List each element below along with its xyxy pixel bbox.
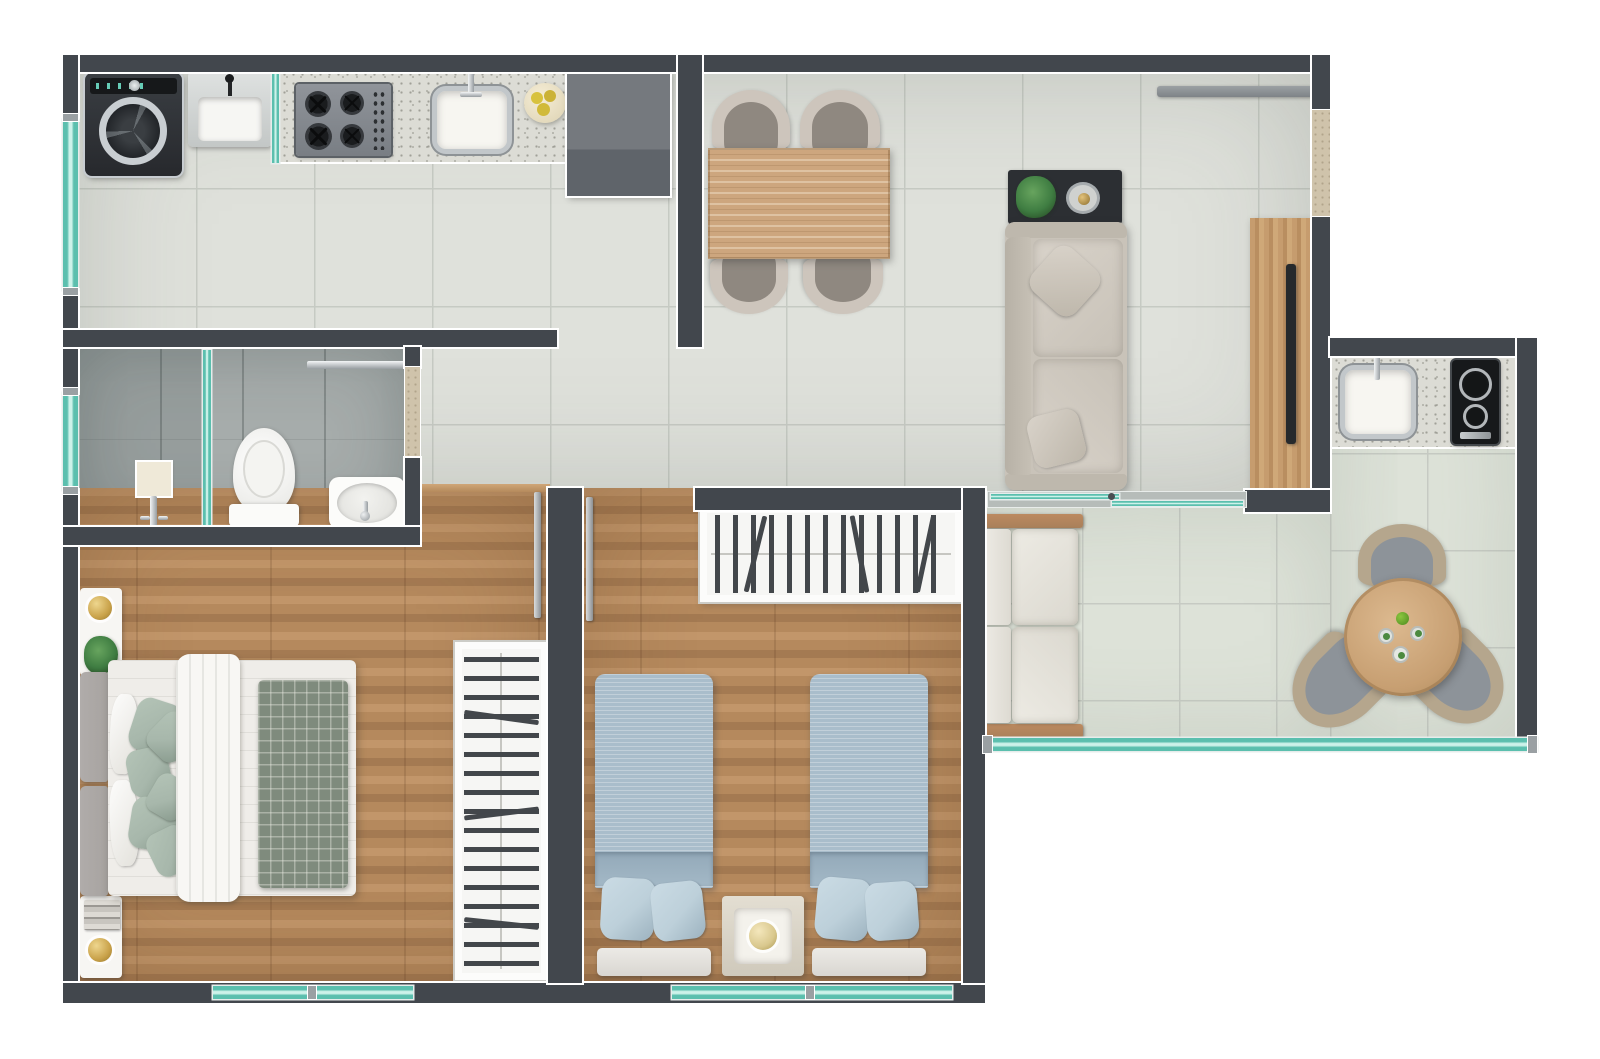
wall-bathroom-right: [405, 347, 420, 367]
drink-glass: [1392, 646, 1409, 663]
sofa-backrest: [1005, 237, 1031, 475]
wall-left: [63, 55, 78, 120]
mint-sprig: [1398, 652, 1405, 659]
floor-plan: [0, 0, 1600, 1059]
toilet: [233, 428, 295, 514]
curtain-rail: [1157, 86, 1313, 97]
washbasin: [329, 477, 405, 529]
outdoor-sofa: [977, 514, 1083, 738]
outdoor-sofa-seat-cushion: [1012, 529, 1078, 625]
outdoor-sofa-seat-cushion: [1012, 627, 1078, 723]
sofa-armrest: [1005, 474, 1127, 490]
toilet-tank: [229, 504, 299, 526]
toilet-seat: [243, 440, 285, 498]
outdoor-sofa-frame: [977, 514, 1083, 528]
bathroom-window: [63, 393, 78, 490]
wall-bathroom-bottom: [63, 527, 420, 545]
coffee-pot: [1078, 193, 1090, 205]
drink-glass: [1410, 626, 1425, 641]
dining-table: [708, 148, 890, 259]
blue-pillow: [813, 876, 872, 942]
sliding-glass-door-panel: [991, 494, 1119, 499]
bed1-headboard: [80, 672, 108, 782]
towel-rail: [307, 361, 407, 369]
wall-bedroom-divider: [548, 488, 582, 983]
window-mullion: [806, 986, 814, 999]
fruit: [544, 90, 556, 102]
wall-kitchen-divider: [678, 55, 702, 347]
tv: [1286, 264, 1296, 444]
wall-right-window-sill: [1312, 110, 1330, 216]
wall-living-bottom-right: [1245, 490, 1330, 512]
basin-faucet-base: [360, 511, 370, 521]
window-frame-cap: [63, 487, 78, 494]
wall-bedroom2-right: [963, 488, 985, 983]
cooktop-control-strip: [1460, 432, 1491, 439]
railing-post: [983, 736, 992, 753]
wall-bedroom2-top: [695, 488, 985, 510]
sofa-armrest: [1005, 222, 1127, 238]
fruit: [537, 103, 550, 116]
shower-handle: [158, 516, 168, 520]
washer-drum: [99, 97, 167, 165]
bathroom-door-opening: [405, 367, 420, 458]
laundry-tub: [188, 71, 272, 147]
window-frame-cap: [63, 388, 78, 395]
burner-icon: [305, 91, 331, 117]
duvet: [176, 654, 240, 902]
burner-icon: [340, 124, 364, 148]
burner-icon: [340, 91, 364, 115]
kitchen-faucet-head: [460, 92, 482, 97]
mint-sprig: [1415, 630, 1422, 637]
drink-glass: [1378, 628, 1394, 644]
wall-bathroom-right: [405, 458, 420, 529]
tv-panel: [1250, 218, 1312, 494]
laundry-glass-partition: [272, 68, 279, 163]
bedroom1-door-leaf: [534, 492, 541, 618]
table-lamp: [749, 922, 777, 950]
bed1-headboard: [80, 786, 108, 896]
railing-post: [1528, 736, 1537, 753]
blue-pillow: [599, 877, 656, 942]
induction-burner-icon: [1459, 368, 1492, 401]
room-hallway-zone: [420, 347, 672, 488]
sliding-glass-door-panel: [1112, 501, 1243, 506]
cooktop-2-burners: [1452, 360, 1499, 444]
bedroom2-door-leaf: [586, 497, 593, 621]
sliding-door-handle: [1108, 493, 1115, 500]
table-lamp: [88, 938, 112, 962]
induction-burner-icon: [1463, 404, 1488, 429]
mint-sprig: [1383, 633, 1390, 640]
window-frame-cap: [63, 114, 78, 121]
window-frame-cap: [63, 288, 78, 295]
fruit-bowl: [524, 83, 566, 123]
wall-balcony-top: [1330, 338, 1537, 356]
cooktop-knobs: [372, 90, 386, 150]
bedroom1-open-wardrobe: [455, 642, 548, 980]
blue-pillow: [864, 880, 920, 941]
wall-balcony-right: [1517, 338, 1537, 739]
blue-pillow: [649, 879, 707, 942]
shower-column: [150, 496, 157, 528]
quilt: [258, 680, 348, 888]
shower-handle: [140, 516, 150, 520]
wall-left: [63, 490, 78, 985]
window-mullion: [308, 986, 316, 999]
laundry-faucet-stem: [228, 82, 232, 96]
washing-machine: [85, 73, 182, 176]
shower-mixer-plate: [137, 462, 171, 496]
laundry-tub-basin: [198, 97, 262, 141]
burner-icon: [305, 123, 332, 150]
single-bed-headboard: [597, 948, 711, 976]
wall-kitchen-bottom: [63, 330, 557, 347]
serving-tray: [1066, 182, 1100, 214]
table-lamp: [88, 596, 112, 620]
kitchen-tall-cabinet: [567, 70, 670, 196]
balcony-round-table: [1344, 578, 1462, 696]
bedroom1-door-threshold: [420, 484, 550, 492]
laundry-window: [63, 120, 78, 290]
bedroom2-open-wardrobe: [700, 506, 962, 602]
outdoor-sofa-frame: [977, 724, 1083, 738]
washer-dial: [129, 80, 140, 91]
shower-glass-screen: [203, 350, 211, 527]
books-stack: [84, 900, 120, 930]
balcony-faucet: [1374, 354, 1380, 380]
balcony-glass-railing: [985, 738, 1537, 751]
single-bed-headboard: [812, 948, 926, 976]
green-apple: [1396, 612, 1409, 625]
cooktop-4-burners: [296, 84, 391, 156]
